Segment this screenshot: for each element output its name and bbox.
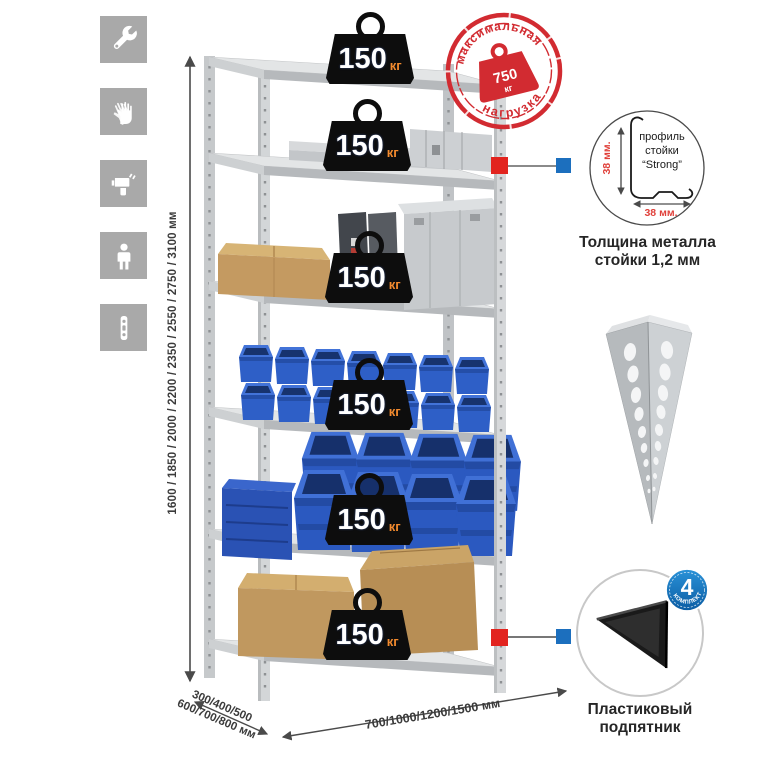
profile-label-line2: стойки bbox=[624, 144, 700, 158]
weight-icon: 150 кг bbox=[323, 121, 411, 171]
shelf-weight-3: 150 кг bbox=[325, 231, 413, 303]
weight-icon: 150 кг bbox=[323, 610, 411, 660]
cardboard-box-shelf3 bbox=[218, 243, 330, 300]
shelf-weight-5: 150 кг bbox=[325, 473, 413, 545]
profile-caption: Толщина металла стойки 1,2 мм bbox=[566, 234, 729, 270]
weight-unit: кг bbox=[387, 146, 399, 159]
foot-caption-line2: подпятник bbox=[565, 719, 715, 737]
weight-value: 150 bbox=[338, 45, 386, 74]
profile-label: профиль стойки “Strong” bbox=[624, 130, 700, 172]
badge-number: 4 bbox=[681, 574, 694, 600]
profile-label-line1: профиль bbox=[624, 130, 700, 144]
shelf-weight-6: 150 кг bbox=[323, 588, 411, 660]
weight-value: 150 bbox=[337, 264, 385, 293]
post-strip-icon bbox=[108, 312, 140, 344]
perforated-angle-post bbox=[606, 315, 692, 524]
person-icon bbox=[108, 240, 140, 272]
weight-unit: кг bbox=[389, 520, 401, 533]
drill-icon bbox=[108, 168, 140, 200]
stamp-weight-icon: 750 кг bbox=[468, 38, 539, 104]
weight-unit: кг bbox=[390, 59, 402, 72]
weight-value: 150 bbox=[335, 621, 383, 650]
weight-unit: кг bbox=[389, 278, 401, 291]
post-profile-feature bbox=[100, 304, 147, 351]
callout-red-square-top bbox=[491, 157, 508, 174]
tool-requirement-wrench bbox=[100, 16, 147, 63]
weight-unit: кг bbox=[389, 405, 401, 418]
height-dimensions-label: 1600 / 1850 / 2000 / 2200 / 2350 / 2550 … bbox=[167, 203, 179, 523]
tool-requirement-drill bbox=[100, 160, 147, 207]
profile-caption-line2: стойки 1,2 мм bbox=[566, 252, 729, 270]
weight-value: 150 bbox=[335, 132, 383, 161]
profile-label-line3: “Strong” bbox=[624, 158, 700, 172]
weight-value: 150 bbox=[337, 506, 385, 535]
tool-requirement-gloves bbox=[100, 88, 147, 135]
weight-icon: 150 кг bbox=[325, 495, 413, 545]
weight-icon: 150 кг bbox=[325, 380, 413, 430]
infographic-stage: максимальная нагрузка 750 кг bbox=[0, 0, 765, 765]
weight-icon: 150 кг bbox=[325, 253, 413, 303]
shelf-weight-1: 150 кг bbox=[326, 12, 414, 84]
shelf-weight-2: 150 кг bbox=[323, 99, 411, 171]
foot-caption-line1: Пластиковый bbox=[565, 701, 715, 719]
weight-icon: 150 кг bbox=[326, 34, 414, 84]
shelf-weight-4: 150 кг bbox=[325, 358, 413, 430]
weight-value: 150 bbox=[337, 391, 385, 420]
foot-caption: Пластиковый подпятник bbox=[565, 701, 715, 737]
profile-dim-horizontal: 38 мм. bbox=[632, 207, 690, 219]
assembly-persons bbox=[100, 232, 147, 279]
weight-unit: кг bbox=[387, 635, 399, 648]
gloves-icon bbox=[108, 96, 140, 128]
max-load-stamp: максимальная нагрузка 750 кг bbox=[436, 3, 572, 139]
profile-caption-line1: Толщина металла bbox=[566, 234, 729, 252]
callout-blue-square-bottom bbox=[556, 629, 571, 644]
callout-blue-square-top bbox=[556, 158, 571, 173]
profile-dim-vertical: 38 мм. bbox=[601, 129, 613, 187]
aluminum-case-large bbox=[398, 198, 498, 310]
wrench-icon bbox=[108, 24, 140, 56]
callout-red-square-bottom bbox=[491, 629, 508, 646]
